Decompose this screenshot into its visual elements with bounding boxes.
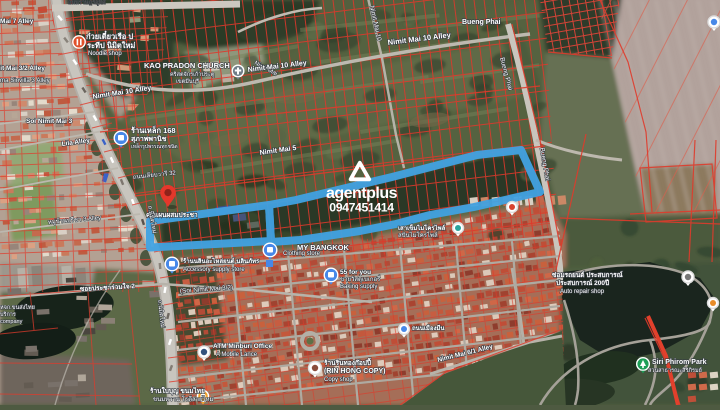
svg-text:ประสบการณ์ 200ปี: ประสบการณ์ 200ปี bbox=[556, 279, 609, 287]
svg-text:ร้านนลินอะไหล่ยนต์ นลินภัทร: ร้านนลินอะไหล่ยนต์ นลินภัทร bbox=[183, 257, 260, 265]
svg-text:บริการ: บริการ bbox=[0, 311, 16, 318]
svg-text:ซ่อมรถยนต์ ประสบการณ์: ซ่อมรถยนต์ ประสบการณ์ bbox=[552, 271, 623, 279]
svg-text:Noodle shop: Noodle shop bbox=[88, 51, 122, 57]
svg-text:Baking supply: Baking supply bbox=[340, 284, 377, 290]
svg-text:เขตมีนบุรี: เขตมีนบุรี bbox=[176, 78, 199, 85]
svg-text:เหล็กรูปพรรณทุกชนิด: เหล็กรูปพรรณทุกชนิด bbox=[131, 142, 178, 150]
svg-text:55 for you: 55 for you bbox=[340, 269, 371, 276]
svg-text:ขนมหวาน โรตีสายไหม: ขนมหวาน โรตีสายไหม bbox=[153, 395, 213, 403]
svg-text:ร้านใบบุญ ขนมไทย: ร้านใบบุญ ขนมไทย bbox=[150, 386, 205, 395]
svg-text:Nimit Mai 7 Alley: Nimit Mai 7 Alley bbox=[0, 18, 34, 25]
svg-text:Nimit Mai 3/2 Alley: Nimit Mai 3/2 Alley bbox=[0, 65, 45, 72]
svg-text:ร้านเหล็ก 168: ร้านเหล็ก 168 bbox=[131, 125, 176, 135]
svg-text:ก๋วยเตี๋ยวเรือ ป: ก๋วยเตี๋ยวเรือ ป bbox=[86, 31, 133, 41]
svg-text:สวนสาธารณะสิริภิรมย์: สวนสาธารณะสิริภิรมย์ bbox=[648, 367, 702, 374]
svg-text:Siri Phirom Park: Siri Phirom Park bbox=[652, 359, 707, 366]
svg-text:ถนนราษฎร์อุทิศ: ถนนราษฎร์อุทิศ bbox=[68, 0, 106, 6]
svg-text:สปันไมโครไพล์: สปันไมโครไพล์ bbox=[398, 231, 438, 239]
svg-text:Copy shop: Copy shop bbox=[324, 377, 353, 383]
svg-text:ระทีป นิมิตใหม่: ระทีป นิมิตใหม่ bbox=[87, 41, 135, 50]
svg-text:Accessory supply store: Accessory supply store bbox=[183, 267, 245, 273]
svg-text:Bueng Phai: Bueng Phai bbox=[462, 19, 501, 26]
svg-text:ถนนเมืองมีน: ถนนเมืองมีน bbox=[412, 324, 445, 332]
svg-text:KAO PRADON CHURCH: KAO PRADON CHURCH bbox=[144, 61, 230, 70]
svg-text:ขายวัสดุเบเกอรี่: ขายวัสดุเบเกอรี่ bbox=[340, 275, 381, 283]
svg-text:Auto repair shop: Auto repair shop bbox=[560, 289, 605, 295]
svg-text:Rama Sinvilla 3 Alley: Rama Sinvilla 3 Alley bbox=[0, 77, 51, 84]
svg-text:company: company bbox=[0, 319, 23, 325]
svg-text:สุภาพพานิช: สุภาพพานิช bbox=[131, 135, 167, 143]
svg-text:agentplus: agentplus bbox=[326, 185, 398, 202]
svg-text:A Mobile Lance: A Mobile Lance bbox=[216, 352, 258, 358]
svg-text:คริสตจักรเก้าประตู: คริสตจักรเก้าประตู bbox=[170, 71, 215, 78]
svg-text:0947451414: 0947451414 bbox=[329, 201, 394, 215]
svg-text:Clothing store: Clothing store bbox=[283, 251, 321, 257]
svg-text:หจก.ขนส่งไทย: หจก.ขนส่งไทย bbox=[0, 304, 35, 311]
svg-text:ATM Minburi Office: ATM Minburi Office bbox=[213, 343, 272, 350]
svg-text:Soi Nimit Mai 3: Soi Nimit Mai 3 bbox=[26, 118, 73, 125]
svg-text:(RIN HONG COPY): (RIN HONG COPY) bbox=[324, 368, 385, 375]
